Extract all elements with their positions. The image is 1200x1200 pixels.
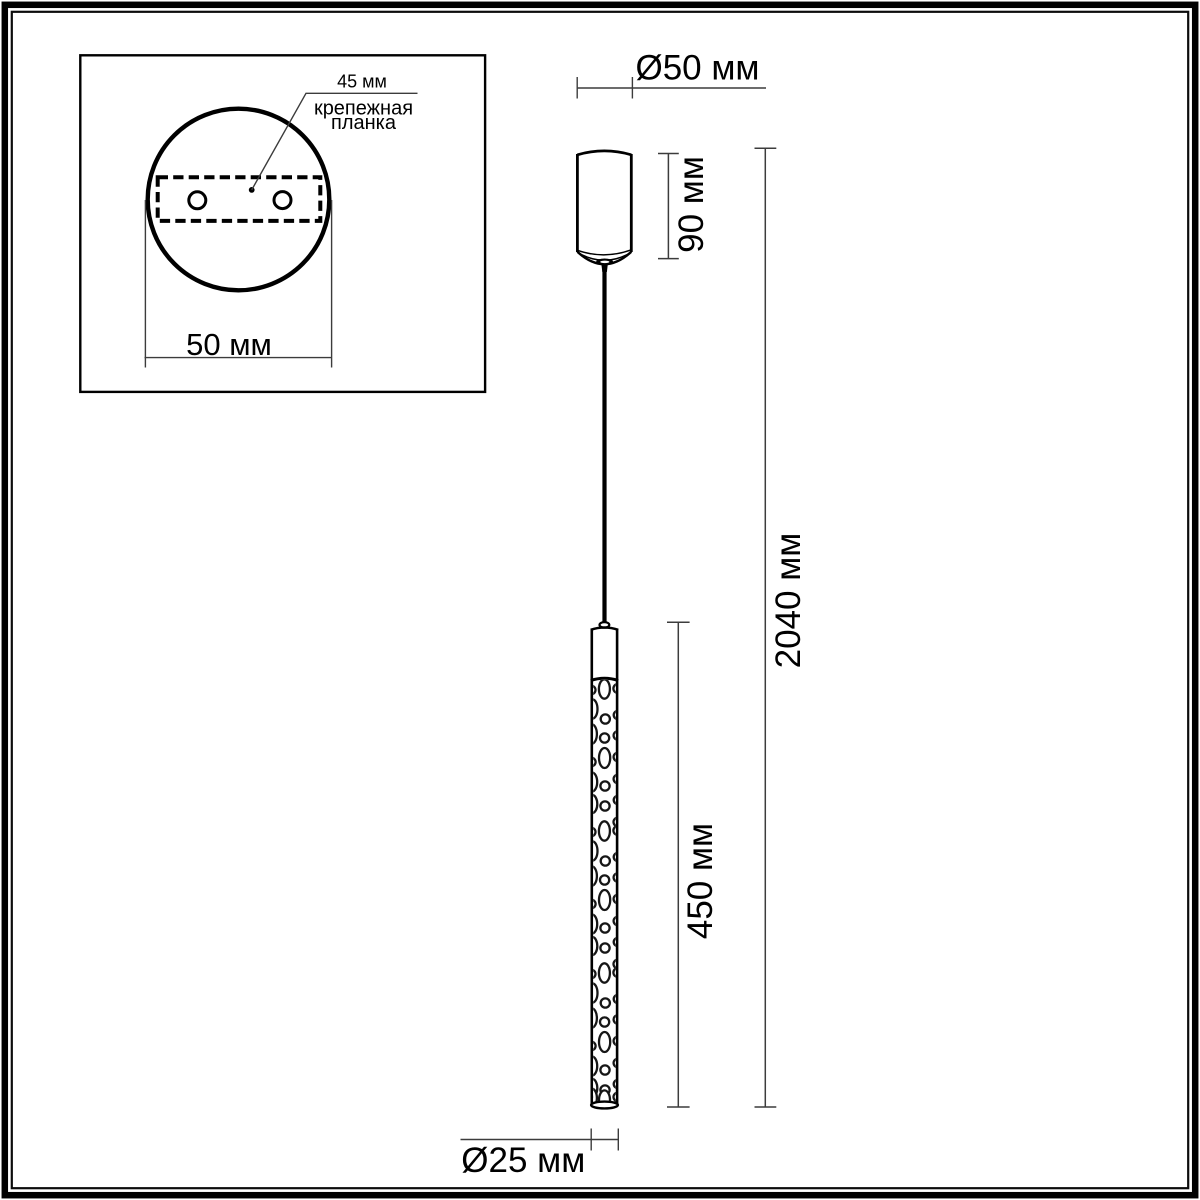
svg-text:2040 мм: 2040 мм [769,533,808,669]
svg-text:Ø50 мм: Ø50 мм [635,48,759,87]
svg-text:450 мм: 450 мм [681,823,720,939]
svg-text:45 мм: 45 мм [337,72,387,92]
svg-text:планка: планка [331,112,397,134]
svg-text:50 мм: 50 мм [186,327,272,362]
svg-text:Ø25 мм: Ø25 мм [461,1141,585,1180]
svg-text:90 мм: 90 мм [672,156,711,253]
